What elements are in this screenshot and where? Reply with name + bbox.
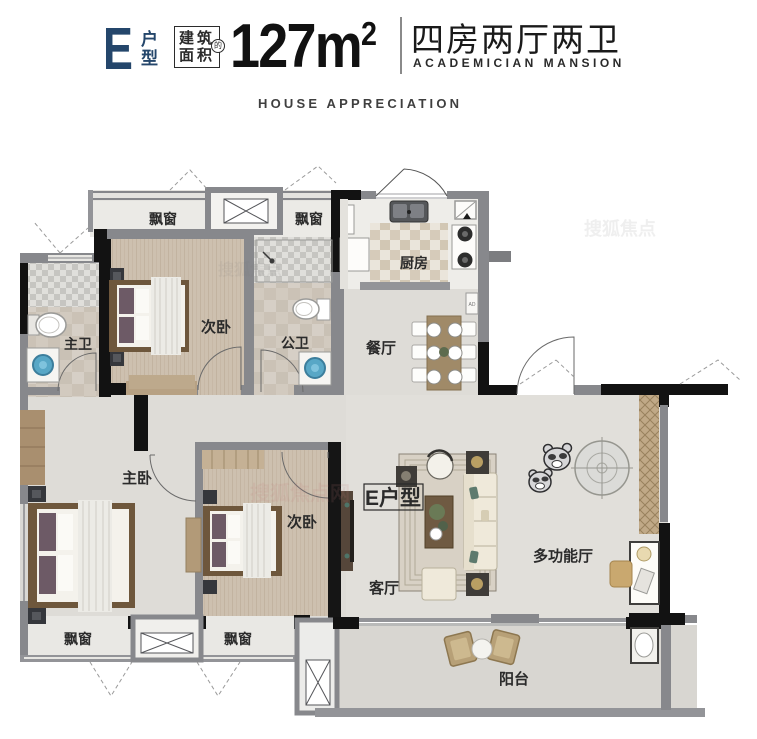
svg-text:搜狐焦点: 搜狐焦点 — [218, 260, 282, 279]
svg-text:搜狐焦点: 搜狐焦点 — [584, 218, 656, 239]
svg-text:E户型: E户型 — [365, 486, 421, 510]
svg-text:次卧: 次卧 — [287, 513, 317, 531]
svg-text:飘窗: 飘窗 — [224, 631, 252, 647]
svg-text:主卫: 主卫 — [64, 336, 92, 352]
svg-text:餐厅: 餐厅 — [366, 339, 396, 357]
svg-text:飘窗: 飘窗 — [295, 211, 323, 227]
svg-text:飘窗: 飘窗 — [149, 211, 177, 227]
svg-text:公卫: 公卫 — [281, 335, 309, 351]
svg-text:客厅: 客厅 — [368, 579, 399, 597]
svg-text:多功能厅: 多功能厅 — [533, 547, 593, 565]
svg-text:主卧: 主卧 — [122, 469, 152, 487]
svg-text:次卧: 次卧 — [201, 318, 231, 336]
svg-text:搜狐焦点网: 搜狐焦点网 — [250, 481, 350, 505]
svg-text:阳台: 阳台 — [499, 670, 529, 688]
svg-text:飘窗: 飘窗 — [64, 631, 92, 647]
svg-text:AD: AD — [469, 302, 476, 308]
svg-text:厨房: 厨房 — [400, 255, 428, 271]
